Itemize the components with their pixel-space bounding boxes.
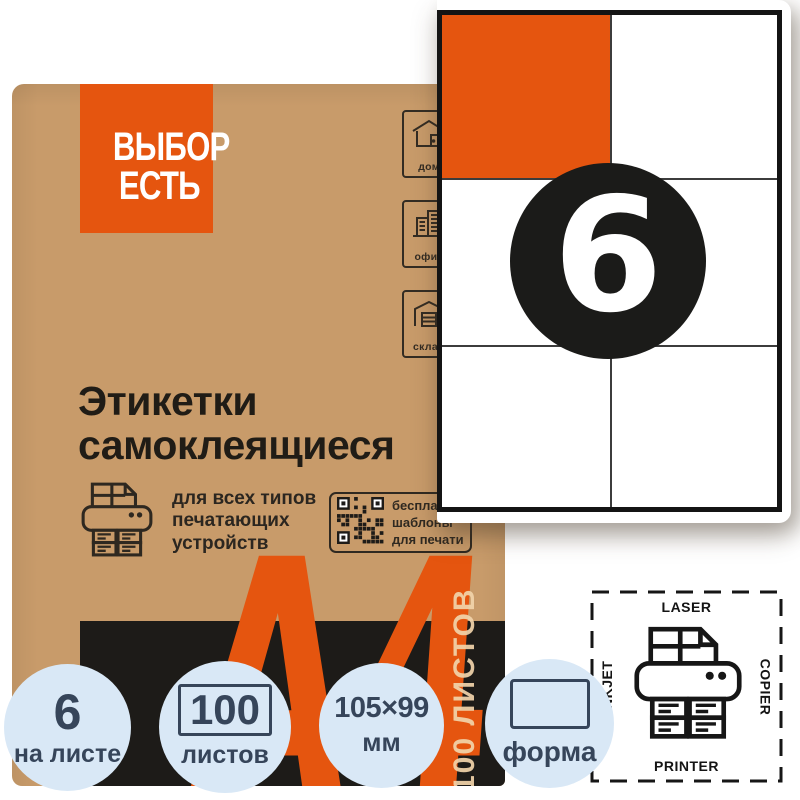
labels-count-digit: 6 xyxy=(553,177,663,345)
label-sheet: 6 xyxy=(437,0,791,523)
badge-shape-label: форма xyxy=(503,736,597,768)
sheet-frame: 6 xyxy=(437,10,782,512)
badge-label-size: 105×99 мм xyxy=(319,663,444,788)
brand-line1: ВЫБОР xyxy=(113,128,230,167)
title-line2: самоклеящиеся xyxy=(78,424,394,468)
product-title: Этикетки самоклеящиеся xyxy=(78,380,394,468)
label-printer: PRINTER xyxy=(590,758,783,774)
printer-icon-large xyxy=(629,623,747,746)
printer-compat-box: LASER PRINTER INKJET COPIER xyxy=(590,590,783,783)
label-laser: LASER xyxy=(590,599,783,615)
brand-logo: ВЫБОР ЕСТЬ xyxy=(80,84,213,233)
badge-sheet-count-value: 100 xyxy=(178,684,272,736)
badge-per-sheet-value: 6 xyxy=(54,687,82,737)
label-shape-icon xyxy=(510,679,590,729)
badge-shape: форма xyxy=(485,659,614,788)
title-line1: Этикетки xyxy=(78,380,394,424)
labels-count-circle: 6 xyxy=(510,163,706,359)
brand-line2: ЕСТЬ xyxy=(119,167,200,206)
label-copier: COPIER xyxy=(758,658,774,715)
badge-per-sheet: 6 на листе xyxy=(4,664,131,791)
badge-sheet-count-label: листов xyxy=(181,741,269,770)
badge-label-size-value: 105×99 xyxy=(334,693,429,725)
product-image: ВЫБОР ЕСТЬ дом офис xyxy=(0,0,800,800)
vertical-sheet-count: 100 ЛИСТОВ xyxy=(448,588,482,787)
highlighted-label-cell xyxy=(442,15,610,178)
badge-label-size-label: мм xyxy=(362,727,400,758)
badge-sheet-count: 100 листов xyxy=(159,661,291,793)
badge-per-sheet-label: на листе xyxy=(14,740,121,769)
